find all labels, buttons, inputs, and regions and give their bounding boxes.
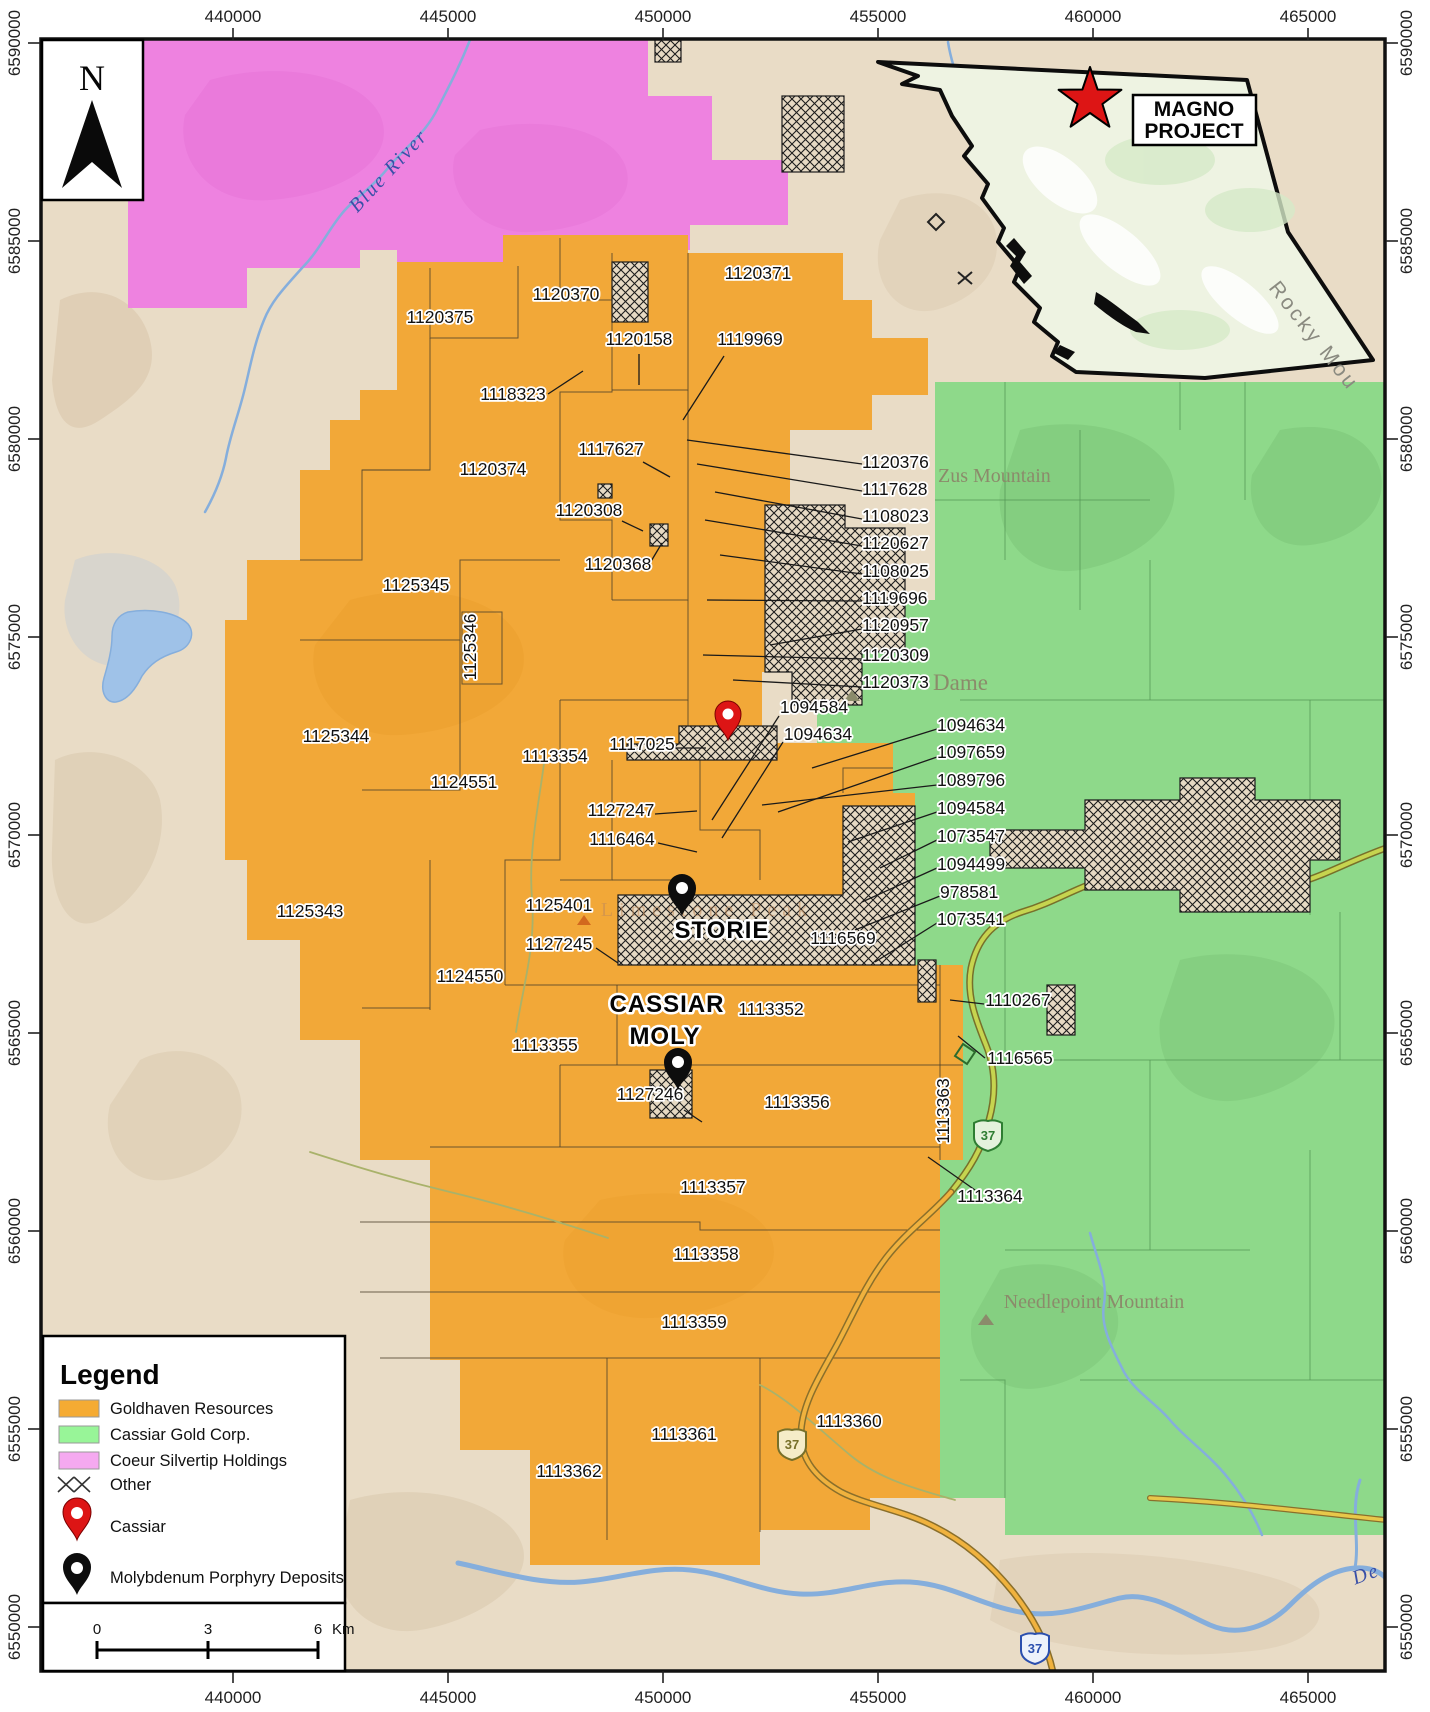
top-axis-label: 445000	[420, 7, 477, 26]
left-axis-label: 6550000	[5, 1594, 24, 1660]
legend-title: Legend	[60, 1359, 160, 1390]
claim-label: 1117627	[578, 439, 644, 459]
legend-other-label: Other	[110, 1476, 152, 1494]
svg-text:37: 37	[785, 1437, 799, 1452]
claim-label: 1127247	[588, 800, 655, 820]
coeur-swatch	[59, 1452, 99, 1469]
place-label: Dame	[933, 670, 988, 695]
top-axis-label: 460000	[1065, 7, 1122, 26]
cassiar-gold-swatch	[59, 1426, 99, 1443]
claim-label: 1125346	[460, 614, 480, 681]
claim-label: 1116565	[987, 1048, 1053, 1068]
claim-label: 1113355	[512, 1035, 578, 1055]
scale-0: 0	[93, 1621, 101, 1638]
claim-label: 1124550	[437, 966, 504, 986]
claim-label: 1127245	[526, 934, 593, 954]
claim-label: 1118323	[480, 384, 546, 404]
claim-label: 1113361	[651, 1424, 717, 1444]
claim-label: 1113364	[957, 1186, 1023, 1206]
svg-text:37: 37	[1028, 1641, 1042, 1656]
claim-label: 1108023	[862, 506, 929, 526]
deposit-label: CASSIAR	[609, 991, 724, 1018]
legend-moly-label: Molybdenum Porphyry Deposits	[110, 1569, 344, 1587]
bottom-axis-label: 450000	[635, 1688, 692, 1707]
legend-goldhaven-label: Goldhaven Resources	[110, 1400, 273, 1418]
claim-label: 1125401	[526, 895, 593, 915]
magno-project-claims-map: MAGNO PROJECT 11203751120370112037111201…	[0, 0, 1430, 1712]
claim-label: 1120158	[606, 329, 673, 349]
claim-label: 1113358	[673, 1244, 739, 1264]
claim-label: 1110267	[985, 990, 1051, 1010]
scale-unit: Km	[332, 1621, 355, 1638]
claim-label: 1094634	[784, 724, 852, 744]
claim-label: 978581	[940, 882, 998, 902]
top-axis-label: 455000	[850, 7, 907, 26]
claim-label: 1117025	[609, 734, 675, 754]
right-axis-label: 6575000	[1397, 604, 1416, 670]
legend-cassiar-gold-label: Cassiar Gold Corp.	[110, 1426, 250, 1444]
claim-label: 1120374	[460, 459, 527, 479]
right-axis-label: 6555000	[1397, 1396, 1416, 1462]
claim-label: 1108025	[862, 561, 929, 581]
highway-37-shield: 37	[778, 1429, 806, 1460]
left-axis-label: 6555000	[5, 1396, 24, 1462]
map-canvas: MAGNO PROJECT 11203751120370112037111201…	[0, 0, 1430, 1712]
place-label: Limestone Peak	[601, 899, 813, 921]
scale-bar: 0 3 6 Km	[43, 1603, 355, 1671]
legend: Legend Goldhaven Resources Cassiar Gold …	[43, 1336, 345, 1603]
right-axis-label: 6590000	[1397, 10, 1416, 76]
top-axis-label: 465000	[1280, 7, 1337, 26]
highway-37-shield: 37	[974, 1120, 1002, 1151]
claim-label: 1120373	[862, 672, 929, 692]
claim-label: 1119696	[862, 588, 928, 608]
deposit-label: MOLY	[629, 1023, 700, 1050]
claim-label: 1094499	[937, 854, 1005, 874]
claim-label: 1120627	[862, 533, 929, 553]
claim-label: 1127246	[617, 1084, 684, 1104]
legend-cassiar-label: Cassiar	[110, 1518, 166, 1536]
claim-label: 1120368	[585, 554, 652, 574]
claim-label: 1097659	[937, 742, 1005, 762]
right-axis-label: 6560000	[1397, 1198, 1416, 1264]
claim-label: 1113362	[536, 1461, 602, 1481]
claim-label: 1113357	[680, 1177, 746, 1197]
claim-label: 1120370	[533, 284, 600, 304]
claim-label: 1116569	[810, 928, 876, 948]
claim-label: 1120376	[862, 452, 929, 472]
legend-coeur-label: Coeur Silvertip Holdings	[110, 1452, 287, 1470]
claim-label: 1120308	[556, 500, 623, 520]
right-axis-label: 6580000	[1397, 406, 1416, 472]
place-label: Zus Mountain	[938, 465, 1051, 487]
project-label-line1: MAGNO	[1154, 98, 1235, 121]
bottom-axis-label: 455000	[850, 1688, 907, 1707]
north-label: N	[79, 58, 105, 98]
scale-3: 3	[204, 1621, 212, 1638]
left-axis-label: 6575000	[5, 604, 24, 670]
bottom-axis-label: 445000	[420, 1688, 477, 1707]
claim-label: 1119969	[717, 329, 783, 349]
claim-label: 1094634	[937, 715, 1005, 735]
left-axis-label: 6570000	[5, 802, 24, 868]
top-axis-label: 440000	[205, 7, 262, 26]
claim-label: 1116464	[589, 829, 655, 849]
highway-37-shield: 37	[1021, 1633, 1049, 1664]
claim-label: 1125345	[383, 575, 450, 595]
claim-label: 1094584	[937, 798, 1005, 818]
claim-label: 1120957	[862, 615, 929, 635]
claim-label: 1073547	[937, 826, 1005, 846]
claim-label: 1120371	[725, 263, 792, 283]
claim-label: 1089796	[937, 770, 1005, 790]
bottom-axis-label: 440000	[205, 1688, 262, 1707]
right-axis-label: 6570000	[1397, 802, 1416, 868]
north-arrow: N	[42, 40, 143, 200]
claim-label: 1113360	[816, 1411, 882, 1431]
bottom-axis-label: 460000	[1065, 1688, 1122, 1707]
left-axis-label: 6585000	[5, 208, 24, 274]
deposit-label: STORIE	[675, 917, 770, 944]
claim-label: 1113356	[764, 1092, 830, 1112]
claim-label: 1113359	[661, 1312, 727, 1332]
top-axis-label: 450000	[635, 7, 692, 26]
right-axis-label: 6585000	[1397, 208, 1416, 274]
claim-label: 1125343	[277, 901, 344, 921]
claim-label: 1125344	[303, 726, 370, 746]
right-axis-label: 6550000	[1397, 1594, 1416, 1660]
claim-label: 1113363	[933, 1078, 953, 1144]
left-axis-label: 6565000	[5, 1000, 24, 1066]
claim-label: 1117628	[862, 479, 928, 499]
place-label: Needlepoint Mountain	[1004, 1291, 1185, 1313]
claim-label: 1094584	[780, 697, 848, 717]
goldhaven-swatch	[59, 1400, 99, 1417]
left-axis-label: 6560000	[5, 1198, 24, 1264]
left-axis-label: 6590000	[5, 10, 24, 76]
bottom-axis-label: 465000	[1280, 1688, 1337, 1707]
claim-label: 1120375	[407, 307, 474, 327]
right-axis-label: 6565000	[1397, 1000, 1416, 1066]
project-label-line2: PROJECT	[1144, 120, 1243, 143]
claim-label: 1113354	[522, 746, 588, 766]
claim-label: 1073541	[937, 909, 1005, 929]
claim-label: 1124551	[431, 772, 498, 792]
claim-label: 1120309	[862, 645, 929, 665]
claim-label: 1113352	[738, 999, 804, 1019]
left-axis-label: 6580000	[5, 406, 24, 472]
scale-6: 6	[314, 1621, 322, 1638]
svg-text:37: 37	[981, 1128, 995, 1143]
